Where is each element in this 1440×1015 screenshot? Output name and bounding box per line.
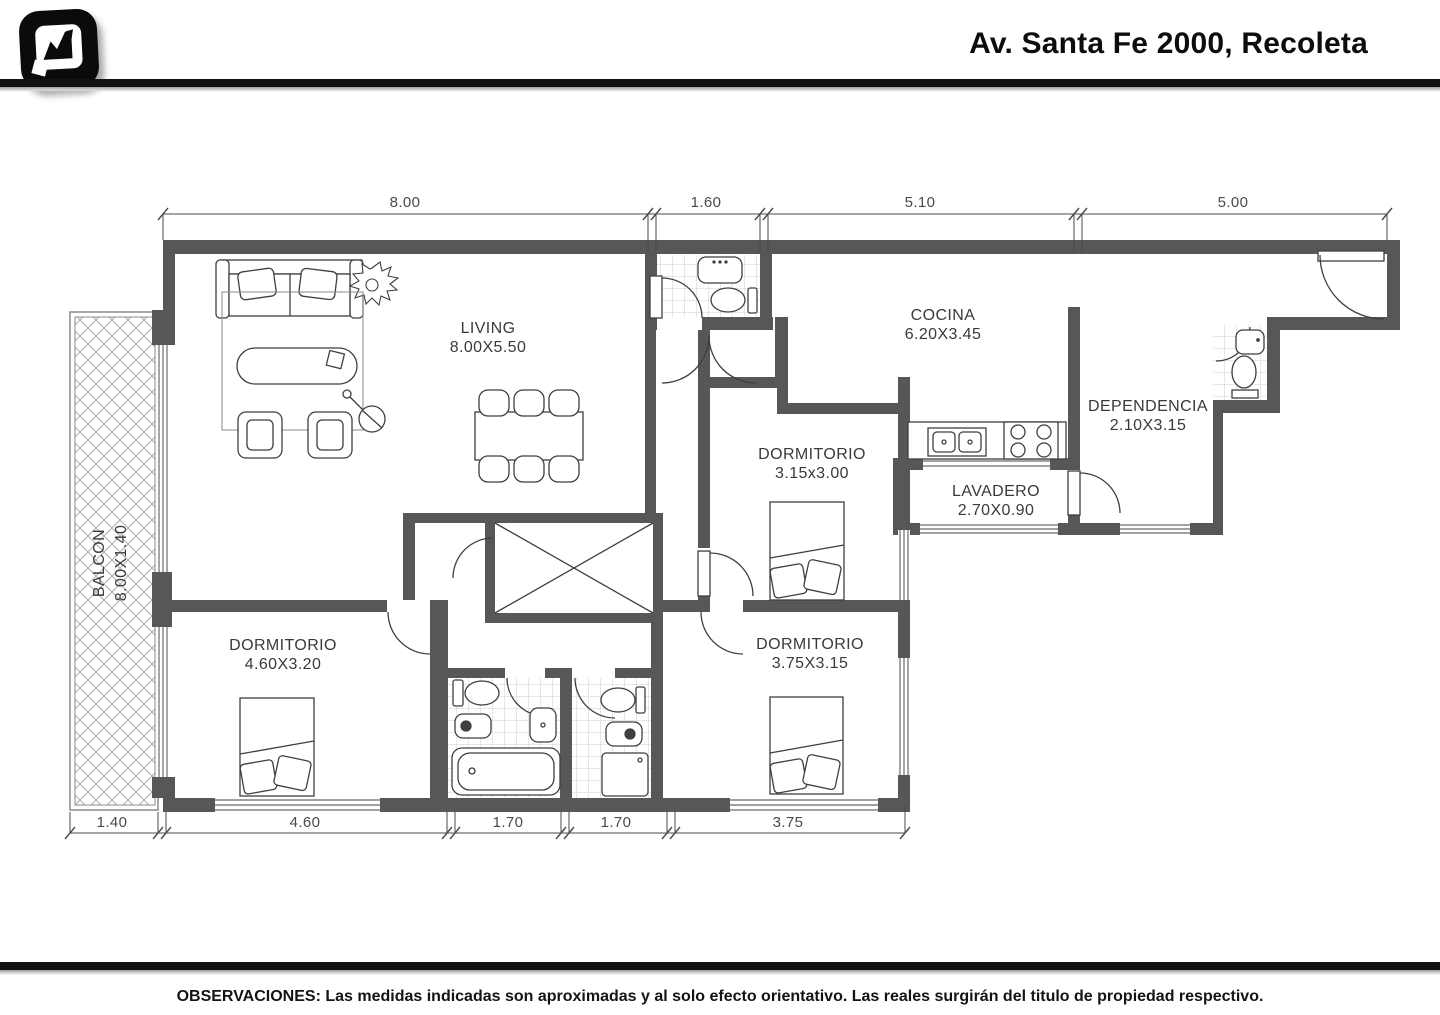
svg-text:LAVADERO: LAVADERO [952,483,1040,500]
svg-text:LIVING: LIVING [461,320,516,337]
svg-text:6.20X3.45: 6.20X3.45 [905,326,982,343]
observaciones-text: OBSERVACIONES: Las medidas indicadas son… [0,988,1440,1006]
dependencia-door [1068,471,1120,515]
dim-top-1: 8.00 [390,194,421,211]
window-living-balcony [157,345,169,572]
window-bedroom2-south [215,798,380,812]
dimension-labels-top: 8.00 1.60 5.10 5.00 [390,194,1249,211]
svg-text:BALCON: BALCON [91,529,108,597]
room-label-dependencia: DEPENDENCIA 2.10X3.15 [1088,398,1208,434]
footer-divider-shadow [0,970,1440,975]
dim-bottom-5: 3.75 [773,814,804,831]
svg-text:COCINA: COCINA [911,307,976,324]
svg-text:DORMITORIO: DORMITORIO [758,446,866,463]
dim-top-3: 5.10 [905,194,936,211]
sofa [216,260,363,318]
footer-divider-bar [0,962,1440,970]
bed-bedroom1 [770,502,844,600]
window-bedroom3-east [898,658,910,775]
window-bedroom-balcony [157,627,169,777]
room-label-dormitorio-2: DORMITORIO 4.60X3.20 [229,637,337,673]
room-label-dormitorio-3: DORMITORIO 3.75X3.15 [756,636,864,672]
doors [388,251,1384,718]
elevator-shaft [490,518,658,618]
room-label-dormitorio-1: DORMITORIO 3.15x3.00 [758,446,866,482]
dim-bottom-2: 4.60 [290,814,321,831]
svg-text:3.15x3.00: 3.15x3.00 [775,465,849,482]
toilet [601,688,635,712]
dim-bottom-3: 1.70 [493,814,524,831]
floor-plan-drawing: 8.00 1.60 5.10 5.00 1.40 4.60 1.70 [0,0,1440,1015]
bed-bedroom2 [240,698,314,796]
room-label-lavadero: LAVADERO 2.70X0.90 [952,483,1040,519]
sink [1236,330,1264,354]
floor-plan-page: Av. Santa Fe 2000, Recoleta [0,0,1440,1015]
toilet [1232,356,1256,388]
dim-top-2: 1.60 [691,194,722,211]
window-bedroom3-south [730,798,878,812]
dining-table [475,390,583,482]
svg-text:DORMITORIO: DORMITORIO [229,637,337,654]
bedroom1-door [698,551,753,596]
svg-text:2.10X3.15: 2.10X3.15 [1110,417,1187,434]
kitchen-pass-through [923,461,1050,466]
bathroom2-fixtures [601,687,648,796]
dim-bottom-1: 1.40 [97,814,128,831]
dim-top-4: 5.00 [1218,194,1249,211]
kitchen-counter [908,422,1066,459]
svg-text:2.70X0.90: 2.70X0.90 [958,502,1035,519]
svg-text:8.00X5.50: 8.00X5.50 [450,339,527,356]
svg-text:3.75X3.15: 3.75X3.15 [772,655,849,672]
svg-text:8.00X1.40: 8.00X1.40 [113,525,130,602]
entry-door [1318,251,1384,319]
dim-bottom-4: 1.70 [601,814,632,831]
bidet [606,722,642,746]
window-dependencia [1120,523,1190,535]
window-lavadero [920,523,1058,535]
bedroom2-door [388,612,430,654]
bed-bedroom3 [770,697,843,794]
svg-text:DEPENDENCIA: DEPENDENCIA [1088,398,1208,415]
toilet [465,681,499,705]
svg-text:DORMITORIO: DORMITORIO [756,636,864,653]
room-label-living: LIVING 8.00X5.50 [450,320,527,356]
toilet [711,288,745,312]
room-label-cocina: COCINA 6.20X3.45 [905,307,982,343]
bedroom3-door [701,612,743,654]
svg-text:4.60X3.20: 4.60X3.20 [245,656,322,673]
window-bedroom1-east [898,530,910,600]
